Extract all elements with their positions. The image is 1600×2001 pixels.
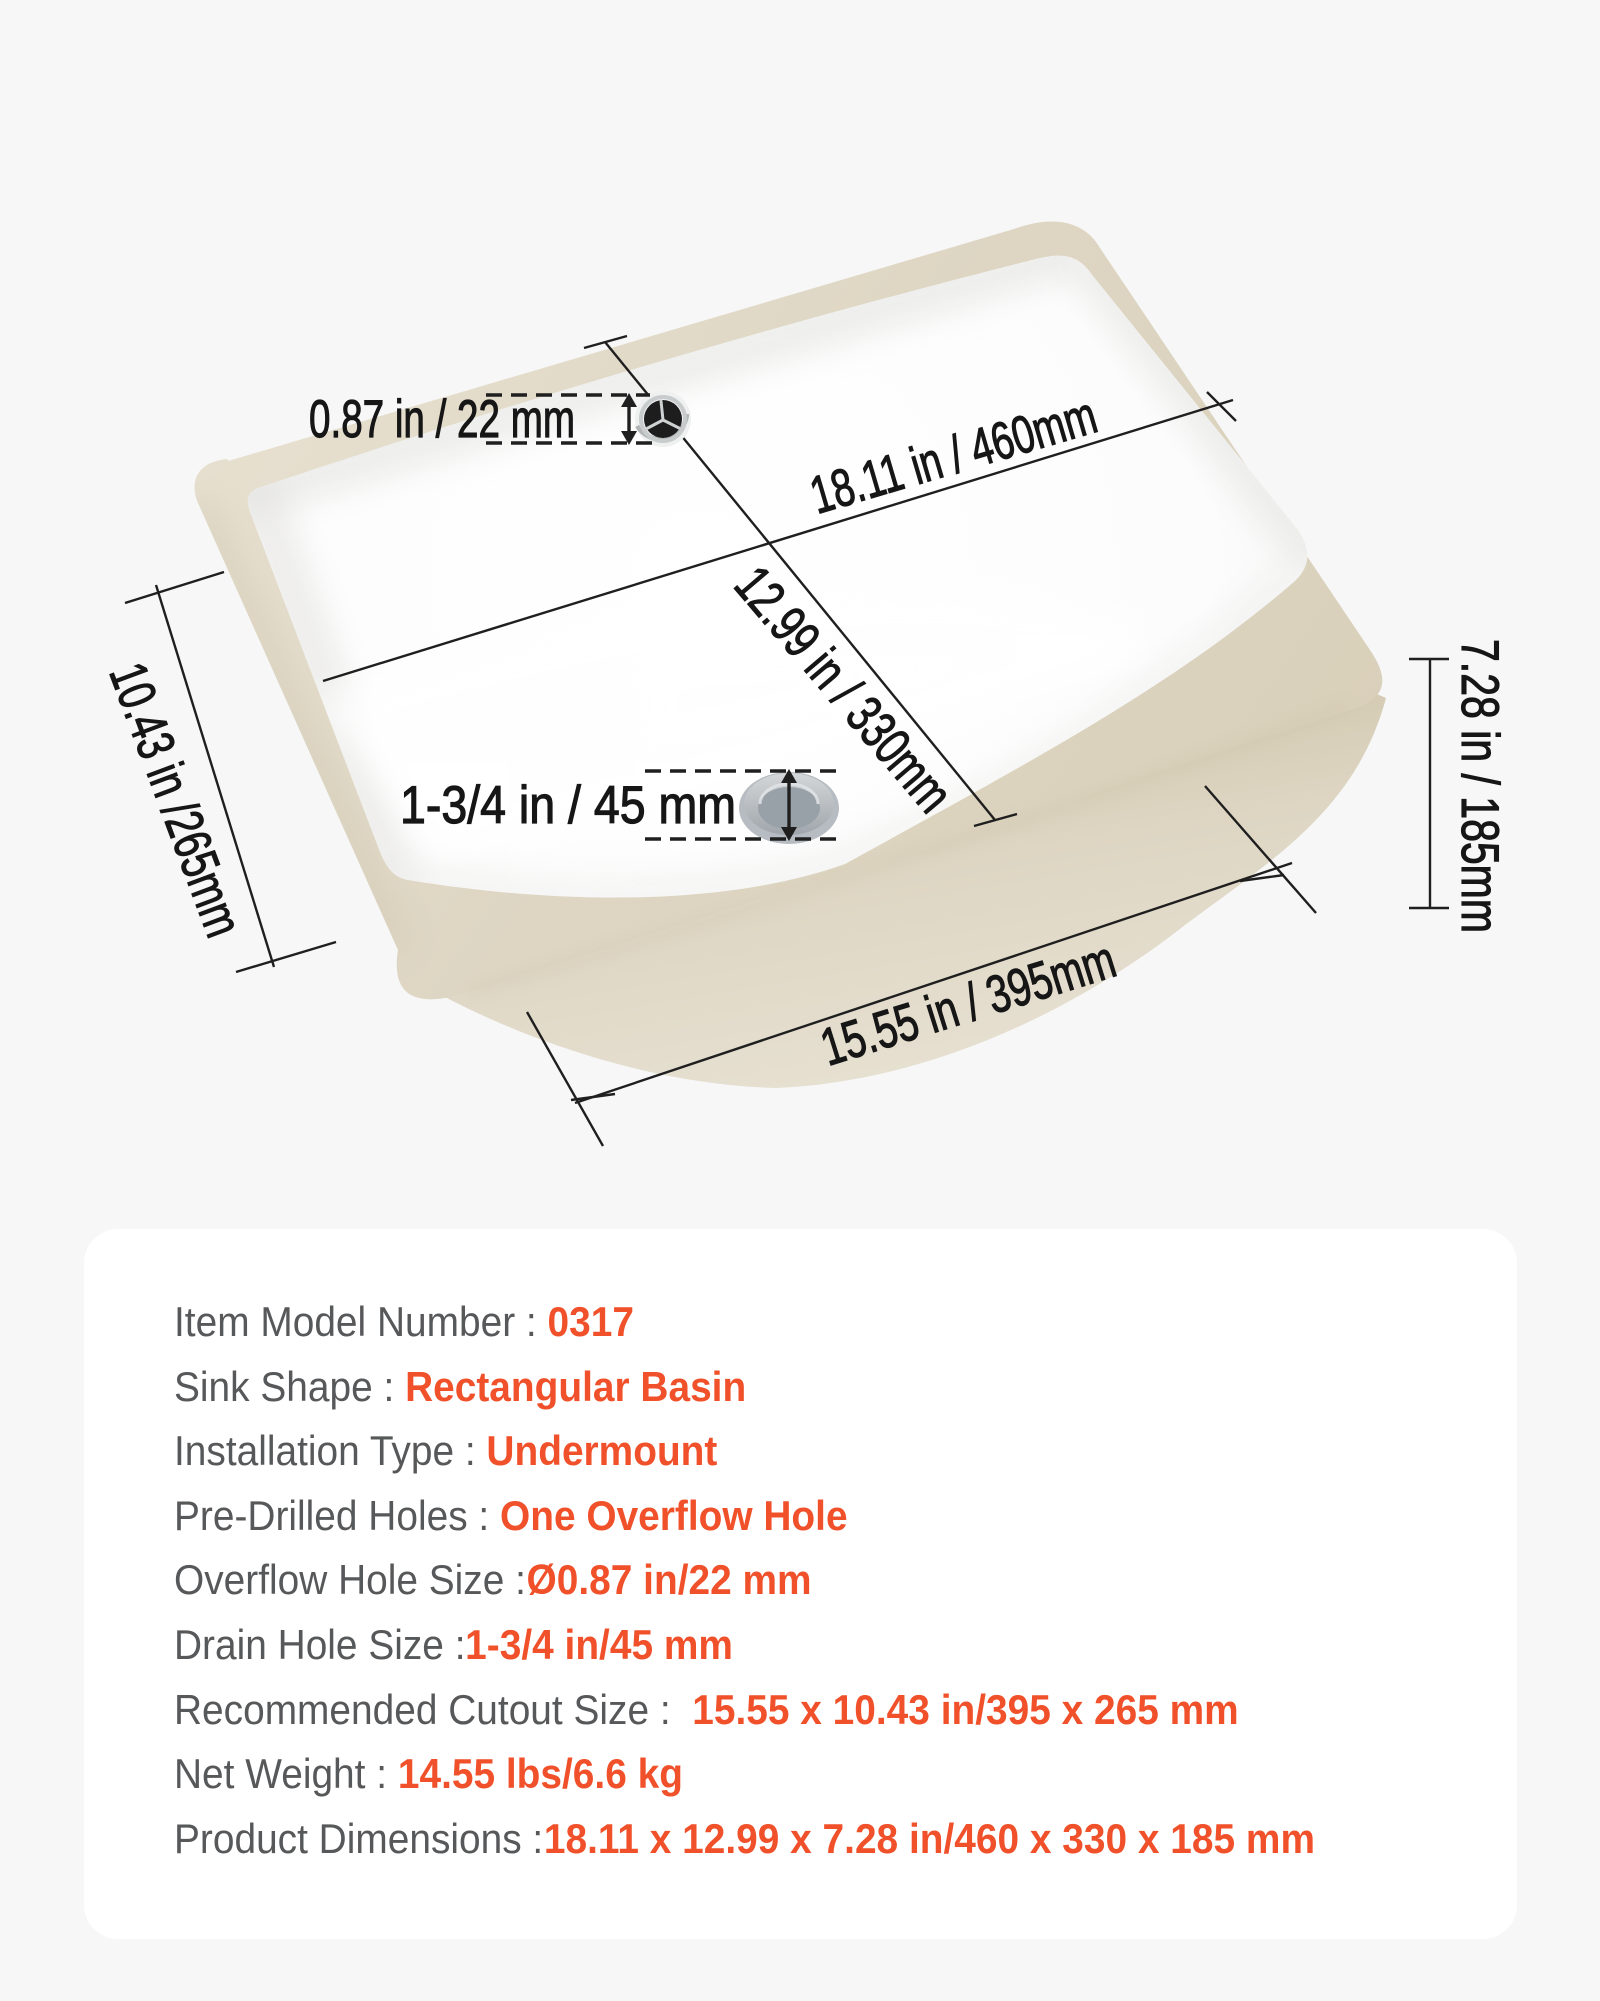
svg-text:7.28 in / 185mm: 7.28 in / 185mm (1450, 639, 1509, 933)
svg-text:1-3/4 in / 45 mm: 1-3/4 in / 45 mm (400, 776, 736, 835)
svg-text:10.43 in /265mm: 10.43 in /265mm (98, 655, 254, 944)
svg-text:0.87 in / 22 mm: 0.87 in / 22 mm (309, 390, 575, 449)
